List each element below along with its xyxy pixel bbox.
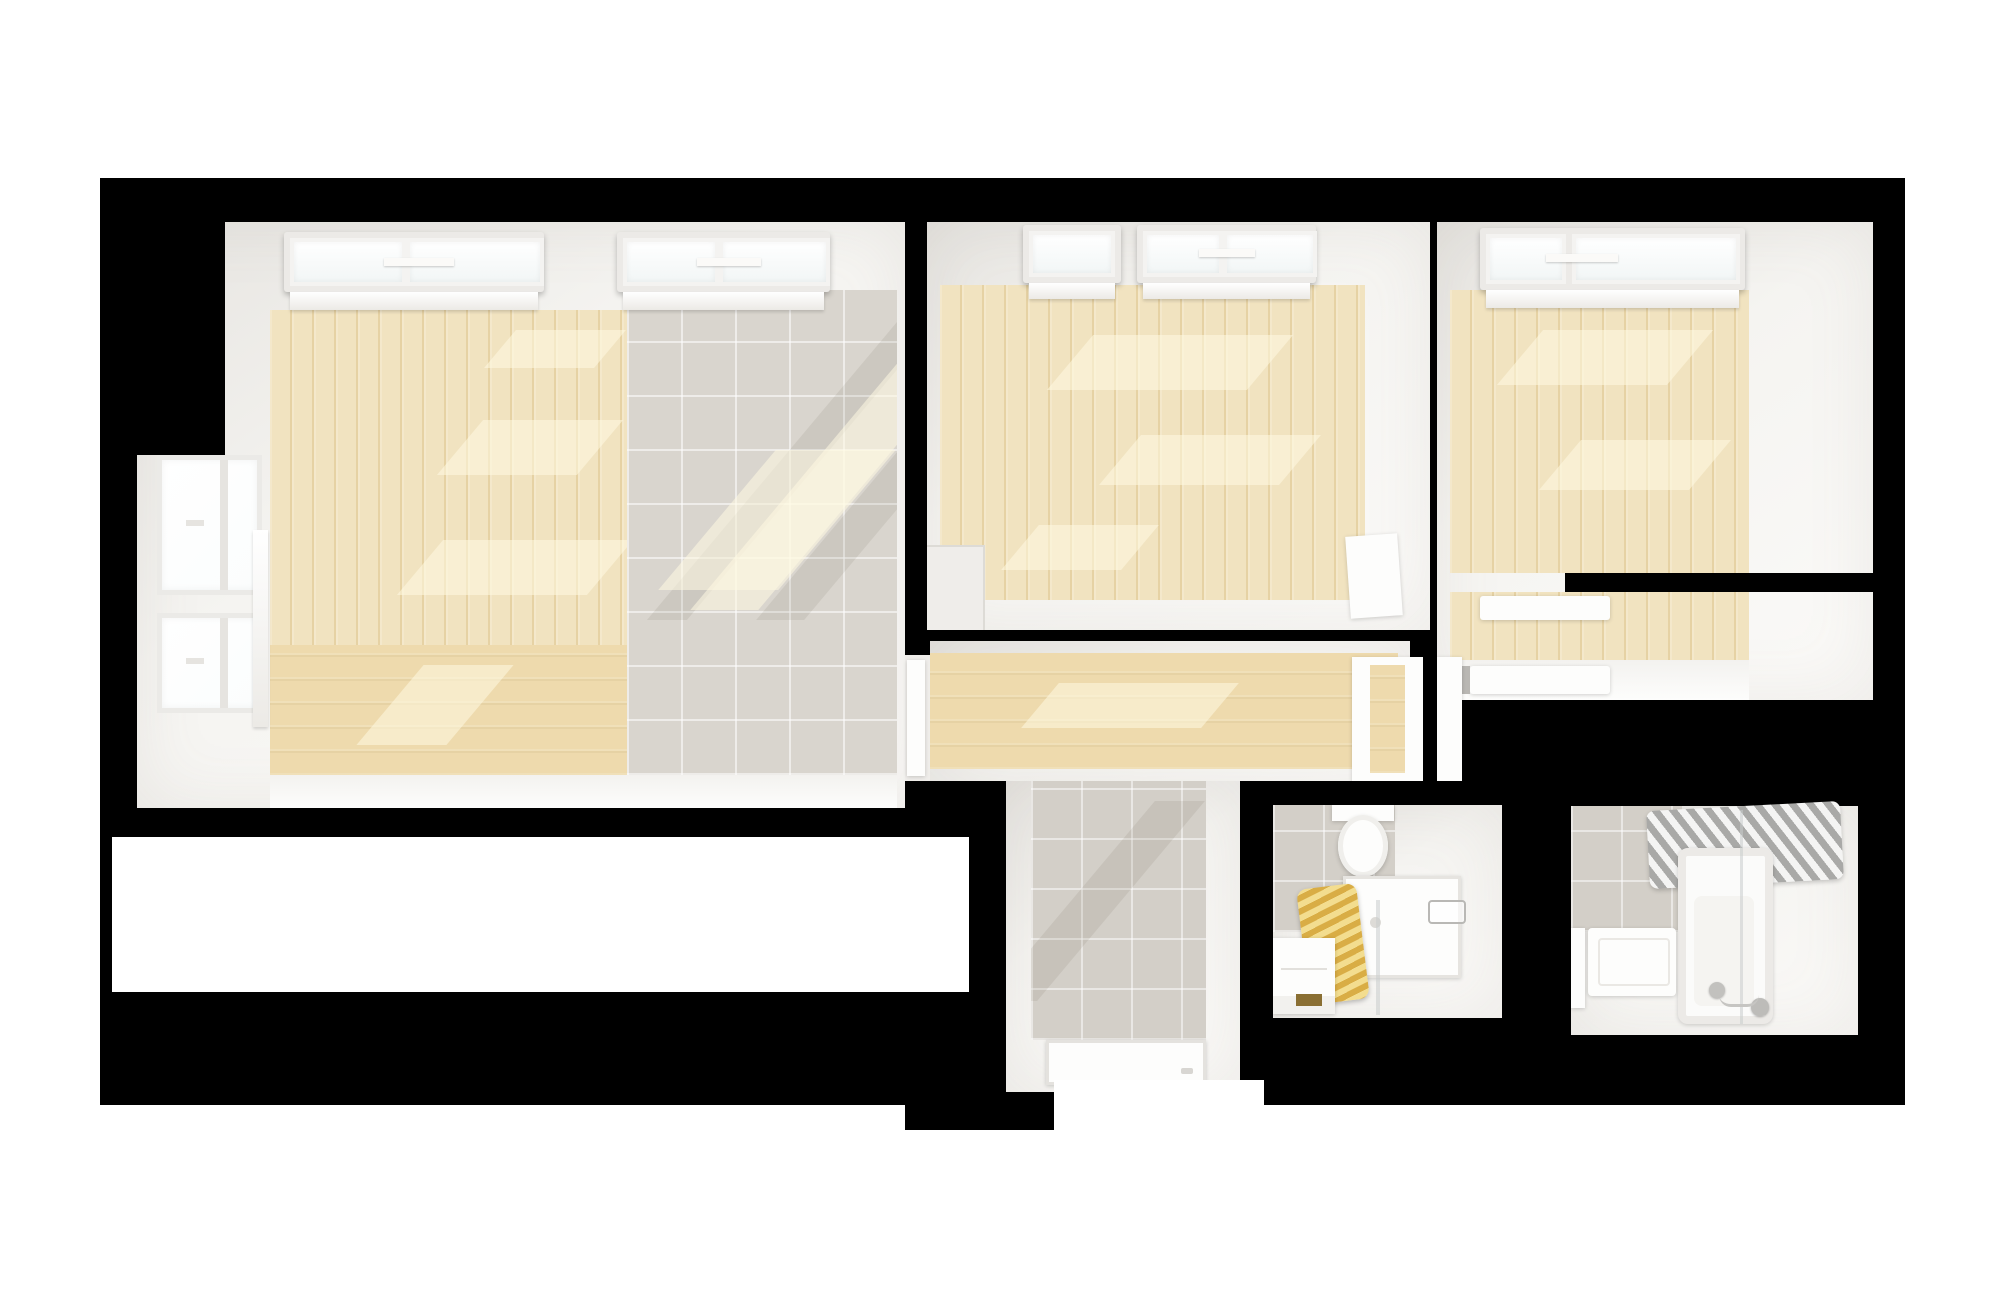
- hallway-wood-floor: [930, 653, 1398, 769]
- skylight-open-sash: [1199, 249, 1255, 257]
- washbasin-bowl-line: [1598, 938, 1670, 986]
- sunlight-patch: [1021, 683, 1239, 728]
- empty-room: [112, 837, 969, 992]
- window-mullion: [220, 460, 228, 590]
- vanity-kick-slot: [1296, 994, 1322, 1006]
- skylight-sill: [623, 292, 824, 310]
- wall-notch: [137, 222, 225, 455]
- sunlight-patch: [1047, 335, 1293, 390]
- skylight-open-sash: [697, 258, 761, 266]
- nook-wall-column: [1437, 657, 1462, 781]
- bedroom-1-wood-floor: [940, 285, 1365, 600]
- corridor-tile-floor: [1031, 781, 1206, 1040]
- door-notch: [927, 545, 985, 630]
- closet-shelf: [1470, 666, 1610, 694]
- skylight-sill: [1143, 283, 1310, 299]
- floor-plan-render: [0, 0, 2000, 1291]
- door-leaf: [907, 660, 925, 776]
- bedroom-2-wood-floor: [1450, 290, 1749, 573]
- skylight-group: [1137, 225, 1316, 283]
- bathroom: [1571, 806, 1858, 1035]
- shower-hose-icon: [1719, 990, 1759, 1007]
- glazed-door-frame: [1352, 657, 1423, 781]
- hallway: [930, 641, 1410, 781]
- faucet-fittings-icon: [1428, 900, 1466, 924]
- living-room-floor-glow: [270, 775, 897, 808]
- living-room-tile-floor: [627, 290, 897, 775]
- side-cabinet: [1571, 928, 1585, 1008]
- closet-shelf: [1480, 596, 1610, 620]
- sunlight-patch: [1001, 525, 1159, 570]
- window-handle: [186, 658, 204, 664]
- washbasin: [1588, 928, 1676, 996]
- sunlight-patch: [356, 665, 513, 745]
- shower-drain: [1181, 1068, 1193, 1074]
- skylight-group: [617, 232, 830, 292]
- living-room-wood-floor-lower: [270, 645, 627, 775]
- shower-tray: [1046, 1040, 1206, 1085]
- skylight-pane: [1029, 231, 1115, 277]
- shower-glass-screen: [1376, 900, 1380, 1015]
- skylight-sill: [290, 292, 538, 310]
- skylight-sill: [1486, 290, 1739, 308]
- window-pier-column: [253, 530, 268, 727]
- sunlight-patch: [1099, 435, 1321, 485]
- sunlight-patch: [484, 330, 626, 368]
- skylight-sill: [1029, 283, 1115, 299]
- glazed-door-opening: [1370, 665, 1405, 773]
- window: [157, 613, 262, 713]
- partition-wall: [1565, 573, 1873, 592]
- toilet-bowl: [1338, 815, 1388, 877]
- sunlight-patch: [397, 540, 627, 595]
- skylight-open-sash: [1546, 254, 1618, 262]
- vanity-drawer-line: [1281, 968, 1327, 970]
- leaning-panel: [1345, 533, 1403, 618]
- sunlight-patch: [1539, 440, 1731, 490]
- window: [157, 455, 262, 595]
- living-room-wood-floor: [270, 310, 627, 645]
- shower-corridor: [1006, 781, 1240, 1092]
- skylight-group: [1480, 228, 1745, 290]
- tile-shadow-band: [1031, 801, 1205, 1001]
- sunlight-patch: [1497, 330, 1713, 385]
- skylight-group: [1023, 225, 1121, 283]
- sunlight-patch: [437, 420, 623, 475]
- skylight-open-sash: [384, 258, 454, 266]
- window-mullion: [220, 618, 228, 708]
- skylight-group: [284, 232, 544, 292]
- wc-shower-room: [1273, 805, 1502, 1018]
- window-handle: [186, 520, 204, 526]
- silhouette-gap: [1054, 1080, 1264, 1130]
